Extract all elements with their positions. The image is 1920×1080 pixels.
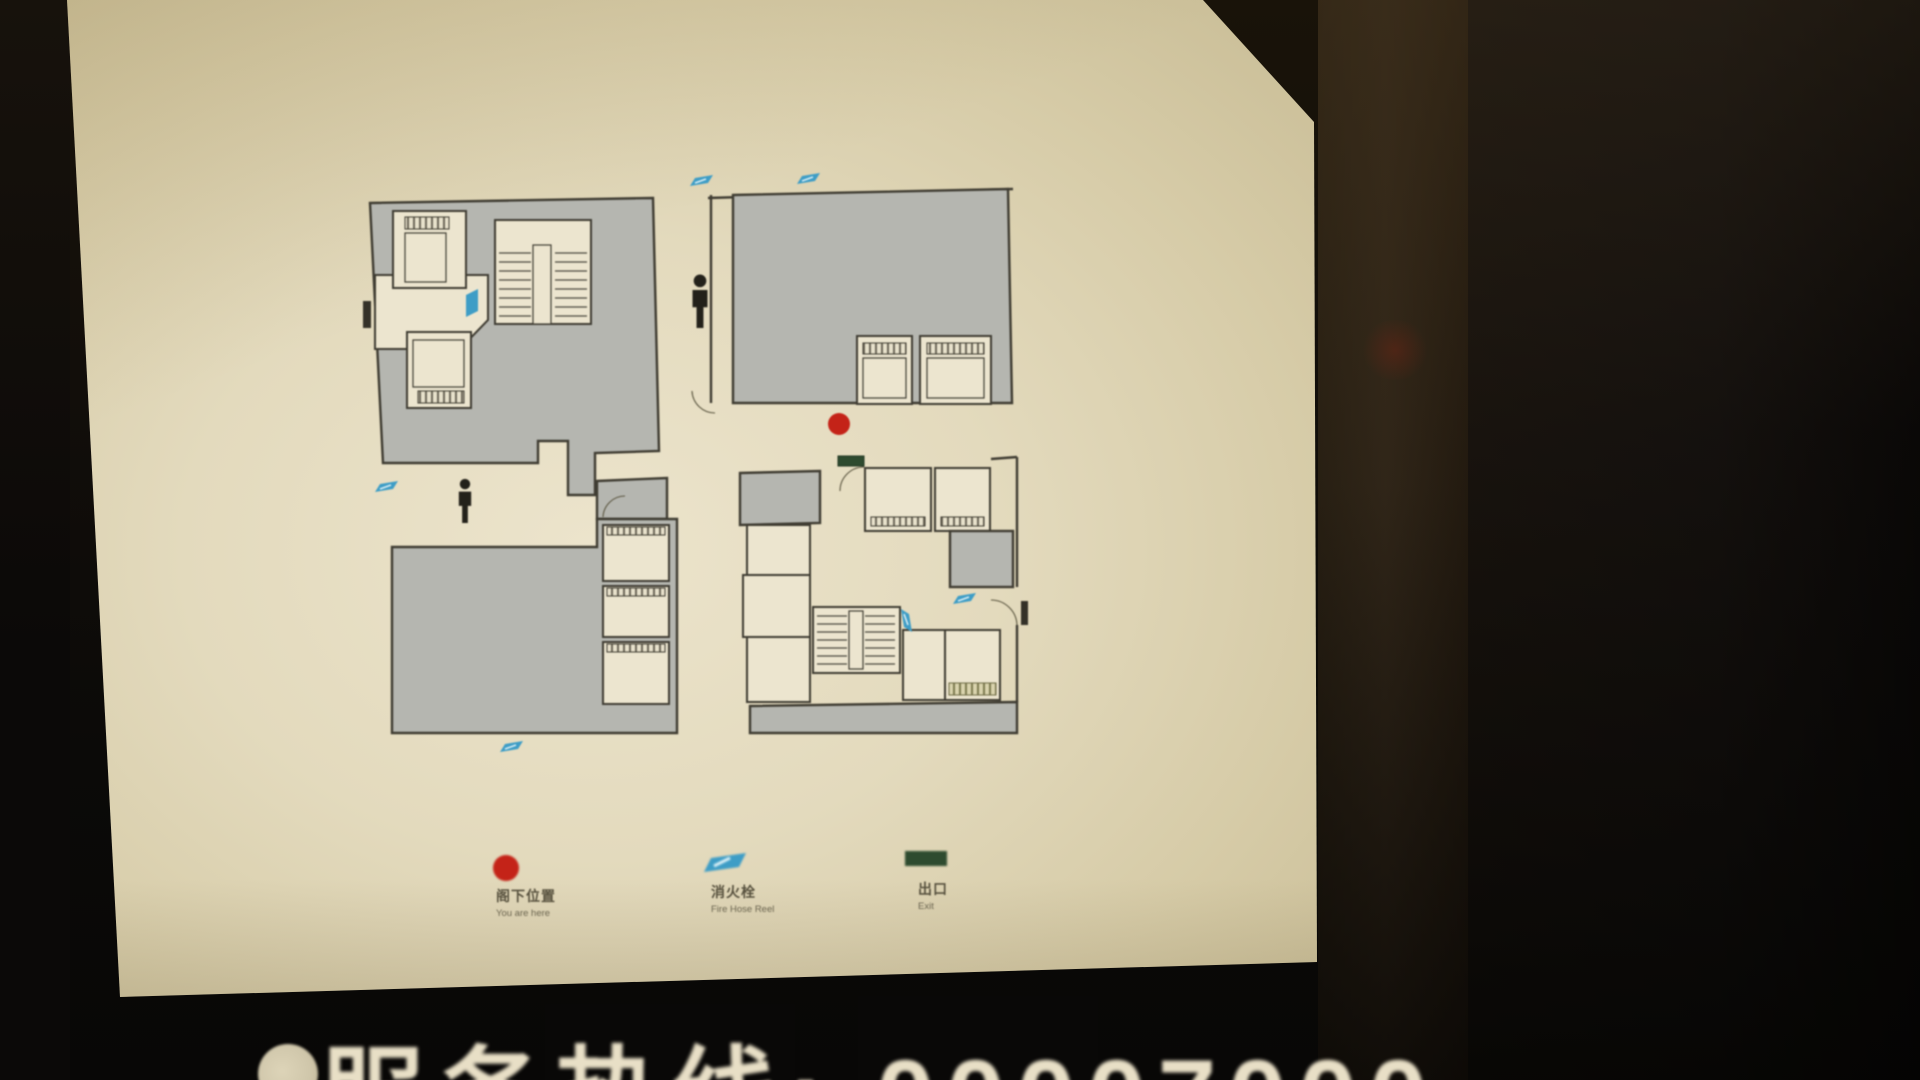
wall-reflection <box>1360 320 1430 380</box>
exit-bar-icon <box>905 851 947 866</box>
floor-plan <box>363 173 1033 768</box>
evacuation-arrow-icon <box>500 741 523 752</box>
elevator-door-hatch <box>418 391 464 403</box>
wood-panel <box>1318 0 1468 1080</box>
legend-label-en: You are here <box>496 908 556 919</box>
legend-item-fire-hose-reel: 消火栓 Fire Hose Reel <box>711 882 774 915</box>
evacuation-arrow-icon <box>797 173 820 184</box>
block-lower-left <box>375 478 677 752</box>
legend-label-en: Fire Hose Reel <box>711 904 774 915</box>
exit-marker <box>838 456 864 466</box>
wall-background-right <box>1468 0 1920 1080</box>
elevator-door-hatch <box>927 343 984 354</box>
evacuation-arrow-icon <box>953 593 976 604</box>
block-upper-left <box>363 198 659 495</box>
legend-item-you-are-here: 阁下位置 You are here <box>496 886 556 919</box>
hotline-text: 服务热线: 00007000 <box>320 1012 1439 1080</box>
male-restroom-icon <box>459 479 471 523</box>
phone-icon <box>258 1044 318 1080</box>
exit-marker <box>1021 601 1028 625</box>
exit-marker <box>363 301 371 328</box>
you-are-here-dot <box>828 413 850 435</box>
elevator-door-hatch <box>863 343 906 354</box>
block-upper-right <box>690 173 1013 413</box>
legend-label-zh: 阁下位置 <box>496 886 556 906</box>
photo-scene: 阁下位置 You are here 消火栓 Fire Hose Reel 出口 … <box>0 0 1920 1080</box>
elevator-door-hatch <box>405 217 449 229</box>
legend-item-exit: 出口 Exit <box>918 879 948 912</box>
evacuation-arrow-icon <box>702 852 748 874</box>
male-restroom-icon <box>693 275 708 328</box>
legend-label-zh: 出口 <box>918 879 948 899</box>
evacuation-arrow-icon <box>690 175 713 186</box>
evacuation-arrow-icon <box>375 481 398 492</box>
legend-label-zh: 消火栓 <box>711 882 774 902</box>
sign-board: 阁下位置 You are here 消火栓 Fire Hose Reel 出口 … <box>67 0 1318 998</box>
block-lower-right <box>740 456 1028 733</box>
evacuation-arrow-icon <box>901 609 912 632</box>
wall-background-left <box>0 0 70 1080</box>
you-are-here-dot-icon <box>493 855 519 881</box>
legend-label-en: Exit <box>918 901 948 912</box>
